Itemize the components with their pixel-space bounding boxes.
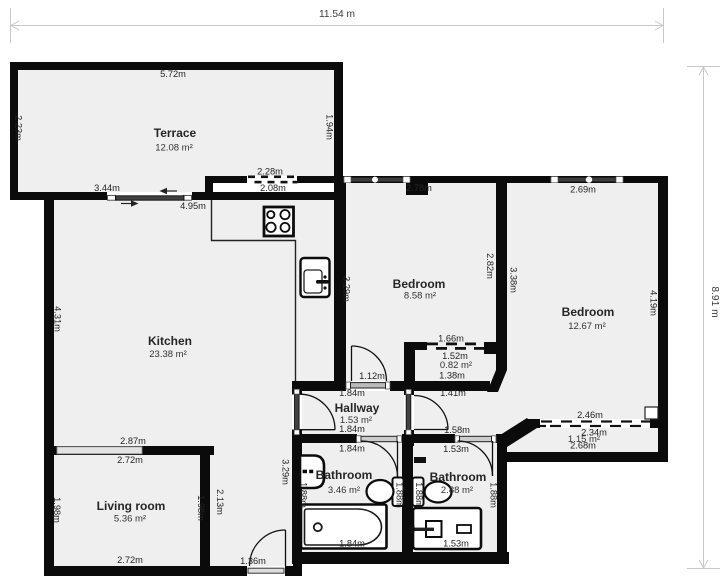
svg-text:Hallway: Hallway: [335, 401, 380, 415]
svg-text:2.23m: 2.23m: [14, 115, 24, 141]
svg-text:Bedroom: Bedroom: [393, 277, 446, 291]
svg-text:1.53m: 1.53m: [443, 444, 469, 454]
svg-text:12.67 m²: 12.67 m²: [568, 321, 606, 332]
svg-text:3.29m: 3.29m: [342, 276, 352, 302]
svg-text:3.44m: 3.44m: [94, 183, 120, 193]
svg-text:2.68m: 2.68m: [570, 440, 596, 450]
svg-text:12.08 m²: 12.08 m²: [155, 143, 193, 154]
svg-text:4.95m: 4.95m: [180, 201, 206, 211]
svg-text:23.38 m²: 23.38 m²: [149, 349, 187, 360]
svg-text:8.91 m: 8.91 m: [709, 286, 720, 317]
svg-text:4.31m: 4.31m: [53, 306, 63, 332]
svg-text:2.87m: 2.87m: [120, 436, 146, 446]
svg-text:1.88m: 1.88m: [414, 482, 424, 508]
svg-text:1.88m: 1.88m: [299, 482, 309, 508]
svg-text:1.84m: 1.84m: [339, 388, 365, 398]
svg-text:3.46 m²: 3.46 m²: [328, 485, 360, 496]
svg-text:1.84m: 1.84m: [339, 443, 365, 453]
svg-text:2.82m: 2.82m: [485, 253, 495, 279]
svg-text:1.66m: 1.66m: [438, 334, 464, 344]
svg-text:1.12m: 1.12m: [359, 371, 385, 381]
svg-text:Bathroom: Bathroom: [316, 468, 373, 482]
svg-text:1.84m: 1.84m: [339, 424, 365, 434]
svg-text:2.72m: 2.72m: [117, 455, 143, 465]
svg-text:1.58m: 1.58m: [444, 425, 470, 435]
svg-text:2.46m: 2.46m: [577, 410, 603, 420]
svg-text:1.53m: 1.53m: [443, 538, 469, 548]
svg-text:1.98m: 1.98m: [196, 495, 206, 521]
svg-text:Bedroom: Bedroom: [562, 305, 615, 319]
svg-text:2.13m: 2.13m: [215, 489, 225, 515]
svg-text:2.69m: 2.69m: [570, 185, 596, 195]
svg-text:11.54 m: 11.54 m: [319, 9, 355, 20]
svg-text:2.08m: 2.08m: [260, 183, 286, 193]
svg-text:5.36 m²: 5.36 m²: [114, 514, 146, 525]
svg-text:1.84m: 1.84m: [339, 538, 365, 548]
svg-text:1.38m: 1.38m: [439, 370, 465, 380]
svg-text:2.78m: 2.78m: [406, 183, 432, 193]
svg-text:1.94m: 1.94m: [325, 114, 335, 140]
svg-text:2.88 m²: 2.88 m²: [441, 485, 473, 496]
svg-text:1.41m: 1.41m: [440, 388, 466, 398]
svg-text:3.29m: 3.29m: [281, 459, 291, 485]
svg-text:2.28m: 2.28m: [257, 167, 283, 177]
svg-text:1.36m: 1.36m: [240, 556, 266, 566]
svg-text:0.82 m²: 0.82 m²: [440, 360, 472, 371]
svg-text:1.98m: 1.98m: [52, 497, 62, 523]
svg-text:4.19m: 4.19m: [649, 290, 659, 316]
svg-text:Kitchen: Kitchen: [148, 334, 192, 348]
svg-text:Terrace: Terrace: [154, 126, 197, 140]
svg-text:5.72m: 5.72m: [160, 69, 186, 79]
svg-text:1.88m: 1.88m: [489, 482, 499, 508]
svg-text:1.88m: 1.88m: [395, 482, 405, 508]
svg-text:2.72m: 2.72m: [117, 555, 143, 565]
svg-text:3.38m: 3.38m: [509, 267, 519, 293]
svg-text:8.58 m²: 8.58 m²: [404, 291, 436, 302]
svg-text:Living room: Living room: [97, 499, 166, 513]
svg-text:Bathroom: Bathroom: [430, 470, 487, 484]
